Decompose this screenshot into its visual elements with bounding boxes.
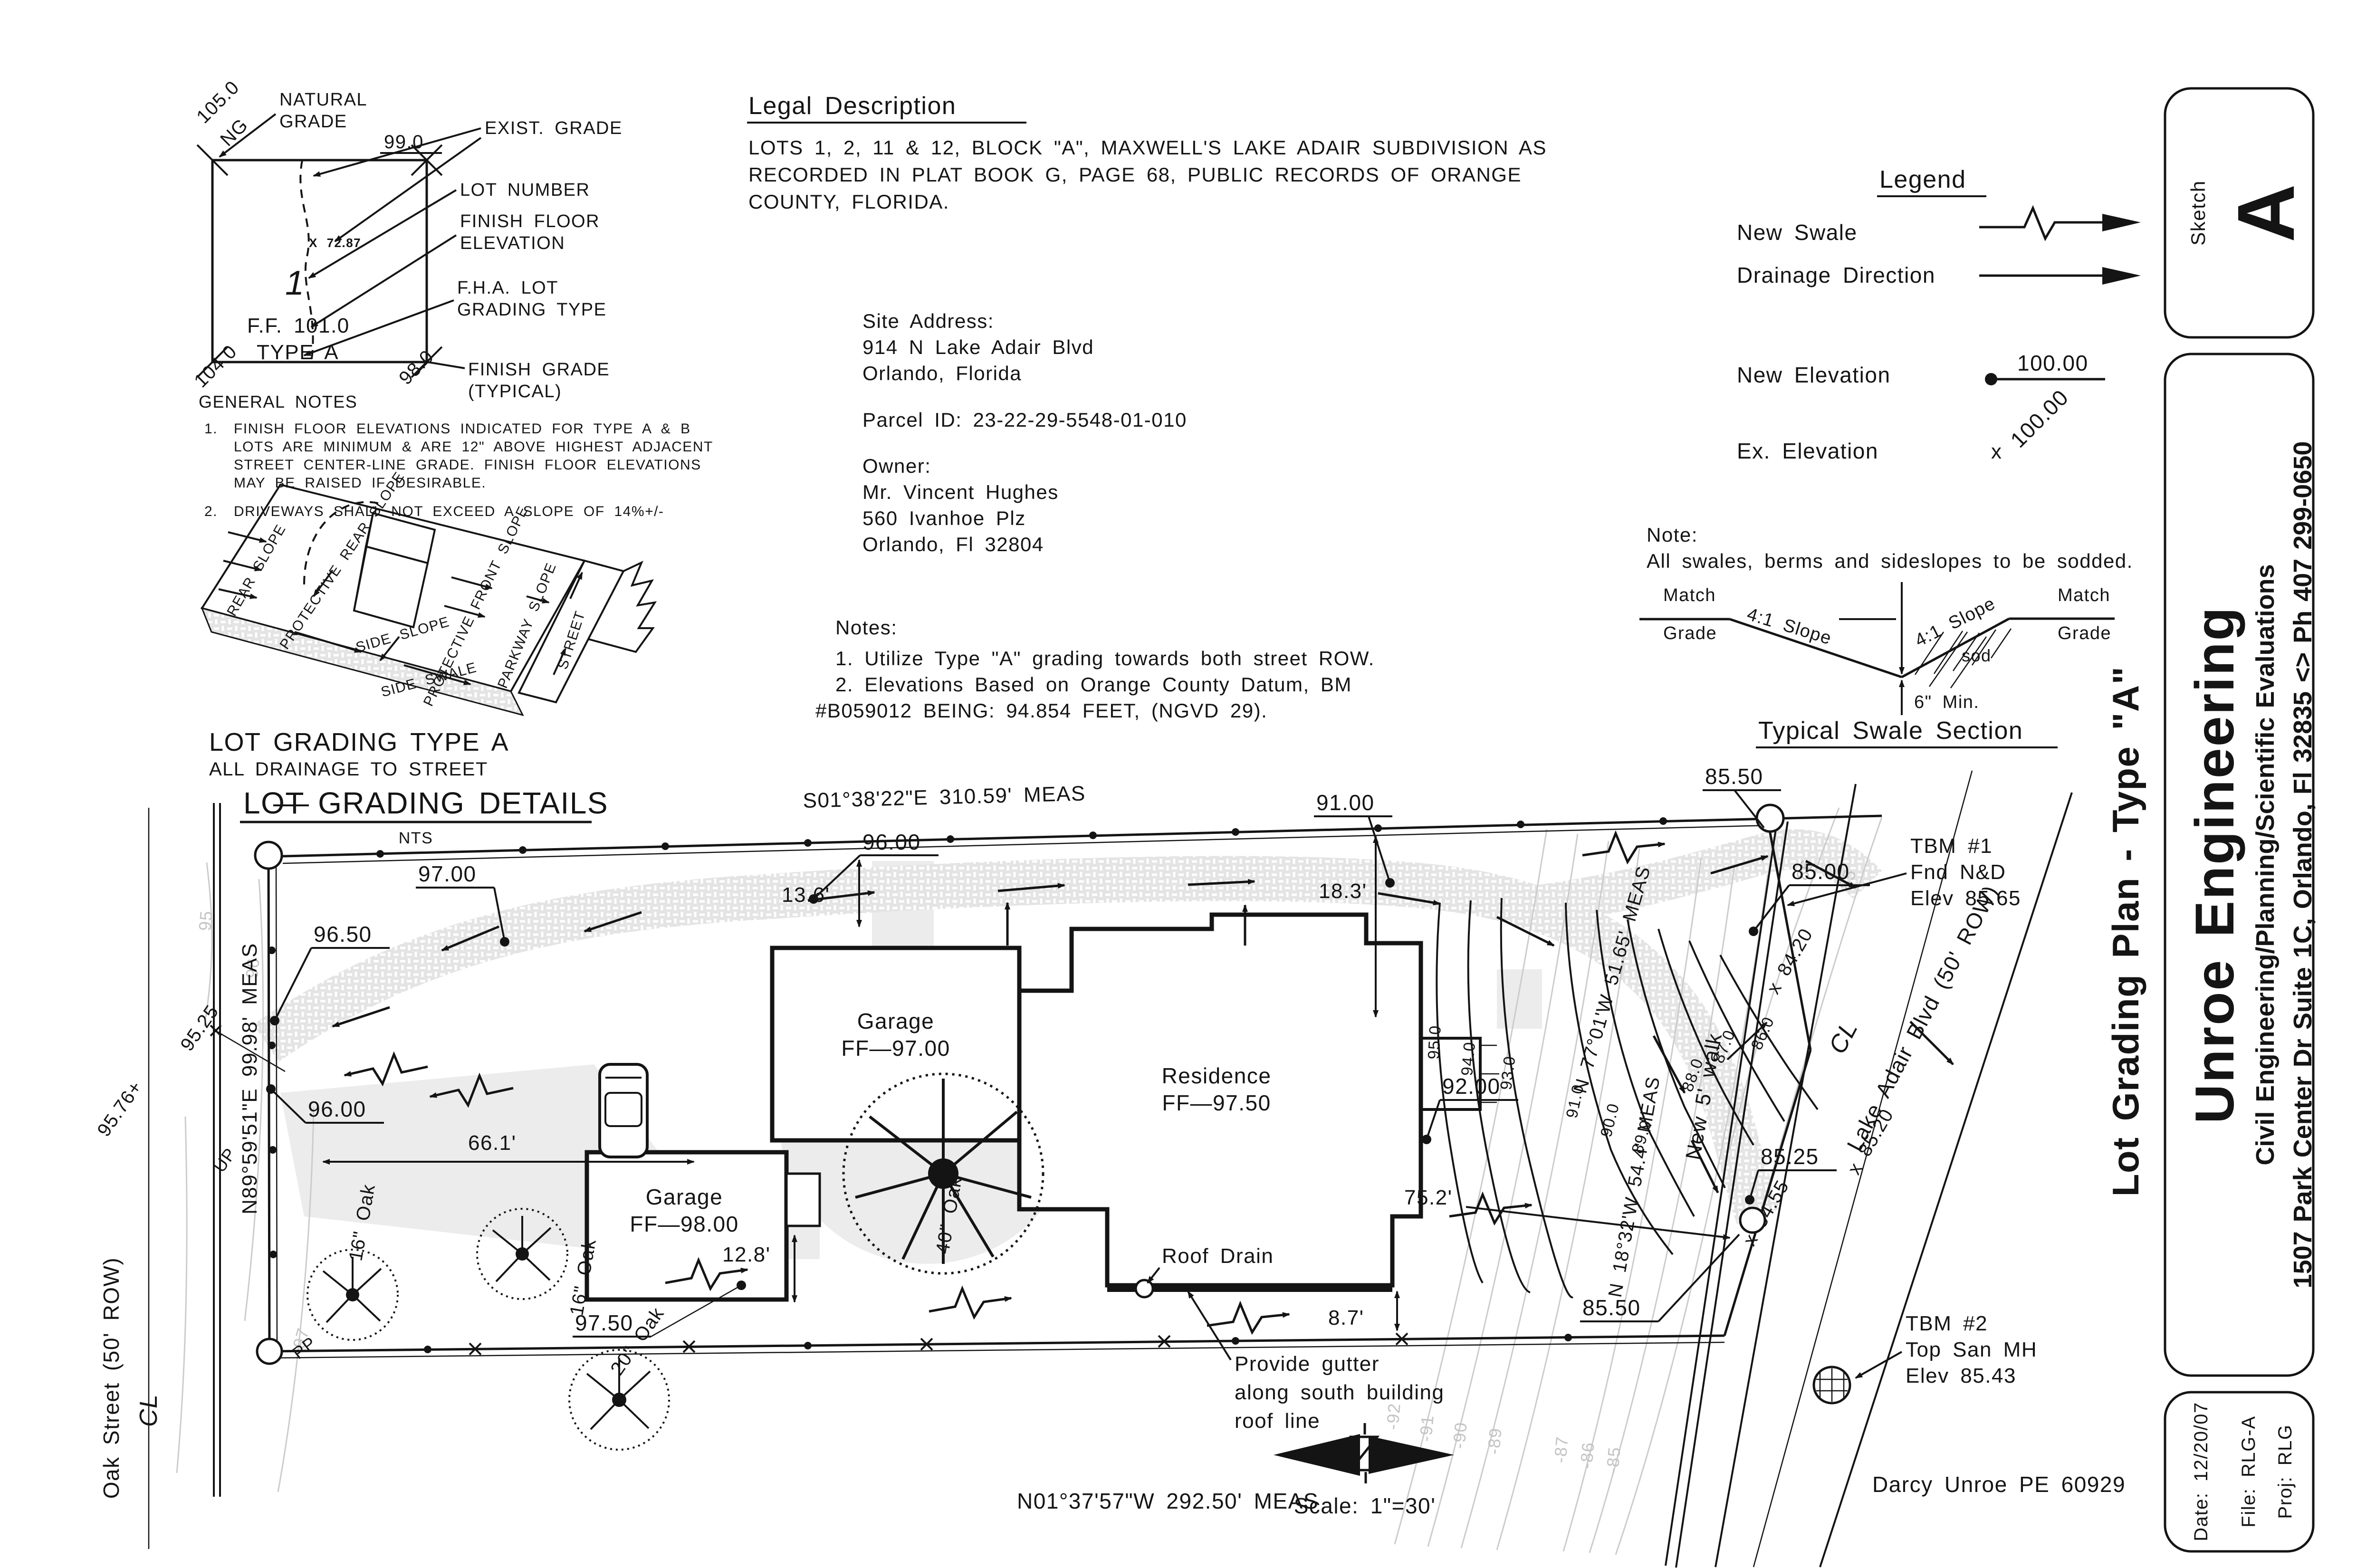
spot-9525: 95.25 (176, 1001, 223, 1055)
spot-9200-leader (1427, 1100, 1440, 1139)
legend-ex-elev-value: 100.00 (2005, 384, 2073, 452)
gray-contour-label: -87 (1550, 1435, 1572, 1464)
gray-contour-label: -85 (1602, 1446, 1624, 1474)
gutter-note-line2: along south building (1235, 1381, 1444, 1404)
survey-dot (269, 1251, 277, 1258)
legend-drainage-label: Drainage Direction (1737, 263, 1935, 287)
bearing-north: S01°38'22"E 310.59' MEAS (803, 782, 1086, 813)
axon-arrow (228, 532, 266, 542)
general-note1-l1: FINISH FLOOR ELEVATIONS INDICATED FOR TY… (234, 421, 691, 437)
survey-dot (947, 835, 954, 843)
detail-lotnum-leader (309, 190, 456, 278)
survey-dot (661, 842, 669, 850)
swale-note-body: All swales, berms and sideslopes to be s… (1647, 550, 2133, 572)
lot-grading-details: 105.0 NG 99.0 104.0 98.0 1 F.F. 101.0 TY… (190, 76, 713, 847)
detail-fg-label1: FINISH GRADE (468, 360, 610, 380)
detail-natural-2: GRADE (279, 112, 347, 132)
corner-monument-nw (255, 842, 282, 869)
swale-min-label: 6" Min. (1914, 692, 1979, 712)
general-notes-title: GENERAL NOTES (199, 392, 357, 411)
survey-dot (269, 1146, 277, 1154)
legend-ex-elev-label: Ex. Elevation (1737, 439, 1878, 463)
swale-match-right-1: Match (2058, 585, 2110, 605)
tbm2-line1: TBM #2 (1906, 1312, 1988, 1335)
type-a-title: LOT GRADING TYPE A (209, 728, 509, 756)
survey-dot (519, 846, 527, 854)
dim-128: 12.8' (722, 1243, 771, 1266)
spot-9576: 95.76+ (93, 1077, 146, 1140)
spot-9600-top: 96.00 (862, 830, 921, 854)
legend-block: Legend New Swale Drainage Direction New … (1737, 166, 2141, 463)
garage-south-stoop (786, 1174, 820, 1226)
spot-9750: 97.50 (575, 1310, 633, 1335)
roof-drain-label: Roof Drain (1162, 1244, 1274, 1268)
file-line-vertical: File: RLG-A (2238, 1415, 2259, 1527)
new-swale-symbol (1207, 1304, 1289, 1332)
gray-contour-label: -90 (1449, 1421, 1471, 1450)
legend-drainage-arrowhead (2102, 267, 2141, 285)
centerline-symbol: CL (1823, 1016, 1863, 1059)
contour-label: 94.0 (1458, 1041, 1479, 1076)
axon-street: STREET (555, 609, 589, 671)
spot-dot (1749, 927, 1758, 936)
notes-title: Notes: (835, 616, 897, 639)
survey-dot (424, 1346, 431, 1353)
owner-label: Owner: (862, 455, 931, 477)
garage-north-label: Garage (857, 1009, 934, 1033)
tbm1-line1: TBM #1 (1910, 834, 1993, 858)
tbm2-line3: Elev 85.43 (1906, 1364, 2016, 1387)
spot-9700: 97.00 (418, 861, 477, 886)
owner-1: Mr. Vincent Hughes (862, 481, 1059, 503)
survey-dot (268, 1042, 276, 1049)
detail-bl-value: 104.0 (190, 341, 241, 392)
spot-8525: 85.25 (1761, 1144, 1819, 1169)
parcel-id: Parcel ID: 23-22-29-5548-01-010 (862, 409, 1187, 431)
legend-new-swale-label: New Swale (1737, 220, 1858, 245)
site-address-2: Orlando, Florida (862, 362, 1022, 384)
scale-label: Scale: 1"=30' (1294, 1493, 1436, 1518)
legal-body-2: RECORDED IN PLAT BOOK G, PAGE 68, PUBLIC… (748, 163, 1522, 186)
oak-20-trunk (612, 1393, 626, 1407)
corner-monument-pp (257, 1339, 282, 1364)
oak-16-trunk (346, 1288, 359, 1301)
spot-9600: 96.00 (308, 1097, 366, 1121)
plan-sheet: 95 96 97 86 85 -92 -91 -90 -89 -87 -86 -… (0, 0, 2376, 1568)
spot-9200: 92.00 (1442, 1074, 1501, 1099)
swale-note-title: Note: (1647, 524, 1698, 546)
bearing-west: N89°59'51"E 99.98' MEAS (238, 943, 261, 1214)
type-a-subtitle: ALL DRAINAGE TO STREET (209, 759, 488, 780)
dim-87: 8.7' (1328, 1306, 1364, 1329)
monument-circle (1740, 1208, 1765, 1233)
dim-752: 75.2' (1404, 1186, 1453, 1209)
gutter-note-line3: roof line (1235, 1409, 1320, 1433)
gray-contour (177, 1117, 187, 1473)
survey-dot (1089, 832, 1097, 839)
contour-label: 95.0 (1425, 1024, 1445, 1060)
contour-label: 90.0 (1597, 1101, 1623, 1139)
detail-ff-label2: ELEVATION (460, 233, 565, 253)
gray-contour-label: -89 (1484, 1427, 1505, 1455)
detail-br-value: 98.0 (395, 346, 438, 389)
general-note1-l3: STREET CENTER-LINE GRADE. FINISH FLOOR E… (234, 457, 701, 473)
details-nts: NTS (399, 829, 433, 847)
swale-section-block: Note: All swales, berms and sideslopes t… (1639, 524, 2133, 747)
owner-2: 560 Ivanhoe Plz (862, 507, 1026, 529)
drawing-canvas: 95 96 97 86 85 -92 -91 -90 -89 -87 -86 -… (0, 0, 2376, 1568)
detail-ff-value: F.F. 101.0 (247, 314, 350, 337)
tbm1-line2: Fnd N&D (1910, 860, 2006, 884)
survey-dot (1659, 817, 1667, 825)
bearing-south: N01°37'57"W 292.50' MEAS (1017, 1489, 1319, 1513)
new-swale-symbol (345, 1054, 428, 1084)
survey-dot (1232, 1337, 1239, 1345)
firm-tagline-vertical: Civil Engineering/Planning/Scientific Ev… (2251, 564, 2280, 1165)
spot-dot (1745, 1195, 1754, 1205)
general-note1-l2: LOTS ARE MINIMUM & ARE 12" ABOVE HIGHEST… (234, 439, 713, 455)
gray-contour-label: -86 (1576, 1441, 1598, 1470)
spot-dot (270, 1016, 279, 1025)
residence-ff: FF—97.50 (1162, 1090, 1271, 1115)
contour-93 (1501, 898, 1573, 1297)
spot-8550-bottom-leader (1658, 1234, 1739, 1321)
tbm1-line3: Elev 85.65 (1910, 887, 2021, 910)
legend-new-elev-value: 100.00 (2017, 351, 2089, 375)
residence-label: Residence (1162, 1063, 1272, 1088)
swale-section-title: Typical Swale Section (1758, 717, 2023, 745)
detail-type: TYPE A (257, 341, 339, 364)
car-glyph (600, 1064, 647, 1157)
boundary-south (269, 1336, 1725, 1351)
survey-dot (1564, 1334, 1572, 1341)
detail-exist-label: EXIST. GRADE (485, 118, 623, 138)
gray-contour-label: -92 (1382, 1402, 1404, 1431)
legal-title: Legal Description (748, 92, 956, 120)
boundary-west-inner (276, 855, 277, 1351)
axon-rear-slope: REAR SLOPE (224, 522, 289, 619)
spot-8550-top: 85.50 (1705, 764, 1763, 789)
drawing-title-vertical: Lot Grading Plan - Type "A" (2105, 666, 2146, 1196)
proj-line-vertical: Proj: RLG (2275, 1424, 2296, 1519)
engineer-signature: Darcy Unroe PE 60929 (1872, 1472, 2126, 1497)
sketch-label: Sketch (2187, 180, 2209, 245)
detail-ff-label1: FINISH FLOOR (460, 211, 600, 231)
spot-dot (1385, 878, 1395, 888)
legal-description-block: Legal Description LOTS 1, 2, 11 & 12, BL… (747, 92, 1547, 722)
legend-new-swale-symbol (1979, 208, 2102, 239)
legend-new-elev-dot (1985, 373, 1997, 385)
general-note2-l1: DRIVEWAYS SHALL NOT EXCEED A SLOPE OF 14… (234, 504, 664, 519)
detail-fha-label2: GRADING TYPE (457, 300, 606, 320)
swale-match-left-1: Match (1663, 585, 1716, 605)
garage-south-label: Garage (646, 1185, 723, 1209)
gutter-note-line1: Provide gutter (1235, 1352, 1380, 1376)
swale-slope-left-label: 4:1 Slope (1744, 604, 1834, 649)
detail-spot: X 72.87 (309, 236, 361, 250)
survey-dot (1374, 824, 1382, 832)
legend-ex-elev-mark: x (1991, 440, 2002, 463)
firm-name-vertical: Unroe Engineering (2184, 606, 2245, 1124)
general-note1-num: 1. (204, 421, 218, 437)
boundary-west (268, 855, 269, 1351)
details-main-title: LOT GRADING DETAILS (243, 786, 608, 820)
dim-183: 18.3' (1319, 880, 1367, 903)
swale-sod-label: sod (1962, 646, 1992, 665)
note-2a: 2. Elevations Based on Orange County Dat… (835, 673, 1352, 696)
survey-dot (804, 1342, 812, 1349)
spot-8500: 85.00 (1792, 859, 1850, 884)
legend-new-elev-label: New Elevation (1737, 363, 1891, 387)
date-line-vertical: Date: 12/20/07 (2191, 1402, 2212, 1541)
boundary-north-inner (283, 825, 1770, 863)
spot-dot (1422, 1135, 1431, 1144)
detail-fg-label2: (TYPICAL) (468, 382, 562, 402)
gutter-note-leader (1188, 1291, 1231, 1360)
legal-body-1: LOTS 1, 2, 11 & 12, BLOCK "A", MAXWELL'S… (748, 136, 1547, 159)
spot-dot (266, 1084, 276, 1094)
survey-dot (376, 850, 384, 858)
legend-new-swale-arrowhead (2102, 214, 2141, 231)
survey-dot (804, 839, 812, 847)
gray-contour-label: -91 (1416, 1414, 1437, 1443)
legal-body-3: COUNTY, FLORIDA. (748, 191, 949, 213)
buildings: Garage FF—97.00 Residence FF—97.50 Garag… (587, 915, 1499, 1300)
lake-blvd-label: Lake Adair Blvd (50' ROW) (1842, 881, 2003, 1155)
roof-drain-outlet (1136, 1280, 1153, 1297)
legend-title: Legend (1879, 166, 1966, 193)
oak-street-label: Oak Street (50' ROW) (99, 1257, 124, 1499)
dim-136: 13.6' (782, 883, 830, 907)
spot-9100: 91.00 (1316, 790, 1375, 815)
survey-dot (268, 947, 276, 954)
swale-grade-left-label: Grade (1663, 623, 1717, 643)
owner-3: Orlando, Fl 32804 (862, 533, 1044, 555)
spot-dot (500, 937, 509, 947)
centerline-symbol: CL (135, 1394, 163, 1427)
detail-lot-number: 1 (285, 264, 305, 302)
dim-661: 66.1' (468, 1131, 517, 1155)
survey-dot (1232, 828, 1239, 836)
swale-grade-right-label: Grade (2058, 623, 2111, 643)
new-swale-symbol (1582, 833, 1665, 862)
axon-parkway: PARKWAY SLOPE (495, 561, 559, 691)
note-2b: #B059012 BEING: 94.854 FEET, (NGVD 29). (815, 699, 1267, 722)
site-address-label: Site Address: (862, 310, 994, 332)
garage-north-ff: FF—97.00 (841, 1036, 950, 1061)
spot-dot (737, 1281, 746, 1290)
spot-9650: 96.50 (314, 922, 372, 947)
firm-address-vertical: 1507 Park Center Dr Suite 1C, Orlando, F… (2289, 441, 2317, 1289)
garage-south-ff: FF—98.00 (630, 1212, 738, 1236)
site-plan: 95 96 97 86 85 -92 -91 -90 -89 -87 -86 -… (93, 764, 2072, 1568)
sketch-letter: A (2221, 183, 2311, 242)
general-note2-num: 2. (204, 504, 218, 519)
corner-monument-ne (1757, 805, 1783, 832)
north-arrow-left (1274, 1434, 1360, 1476)
new-swale-symbol (929, 1289, 1011, 1317)
survey-dot (1517, 821, 1524, 828)
detail-natural-1: NATURAL (279, 90, 367, 110)
tbm2-leader (1856, 1352, 1902, 1378)
north-arrow-right (1369, 1436, 1454, 1474)
site-address-1: 914 N Lake Adair Blvd (862, 336, 1094, 358)
oak-16-trunk (516, 1247, 529, 1261)
tbm2-line2: Top San MH (1906, 1338, 2037, 1361)
detail-lotnum-label: LOT NUMBER (460, 180, 590, 200)
general-note1-l4: MAY BE RAISED IF DESIRABLE. (234, 475, 486, 491)
spot-8550-bottom: 85.50 (1582, 1295, 1641, 1320)
note-1: 1. Utilize Type "A" grading towards both… (835, 647, 1375, 669)
detail-fha-label1: F.H.A. LOT (457, 278, 558, 298)
